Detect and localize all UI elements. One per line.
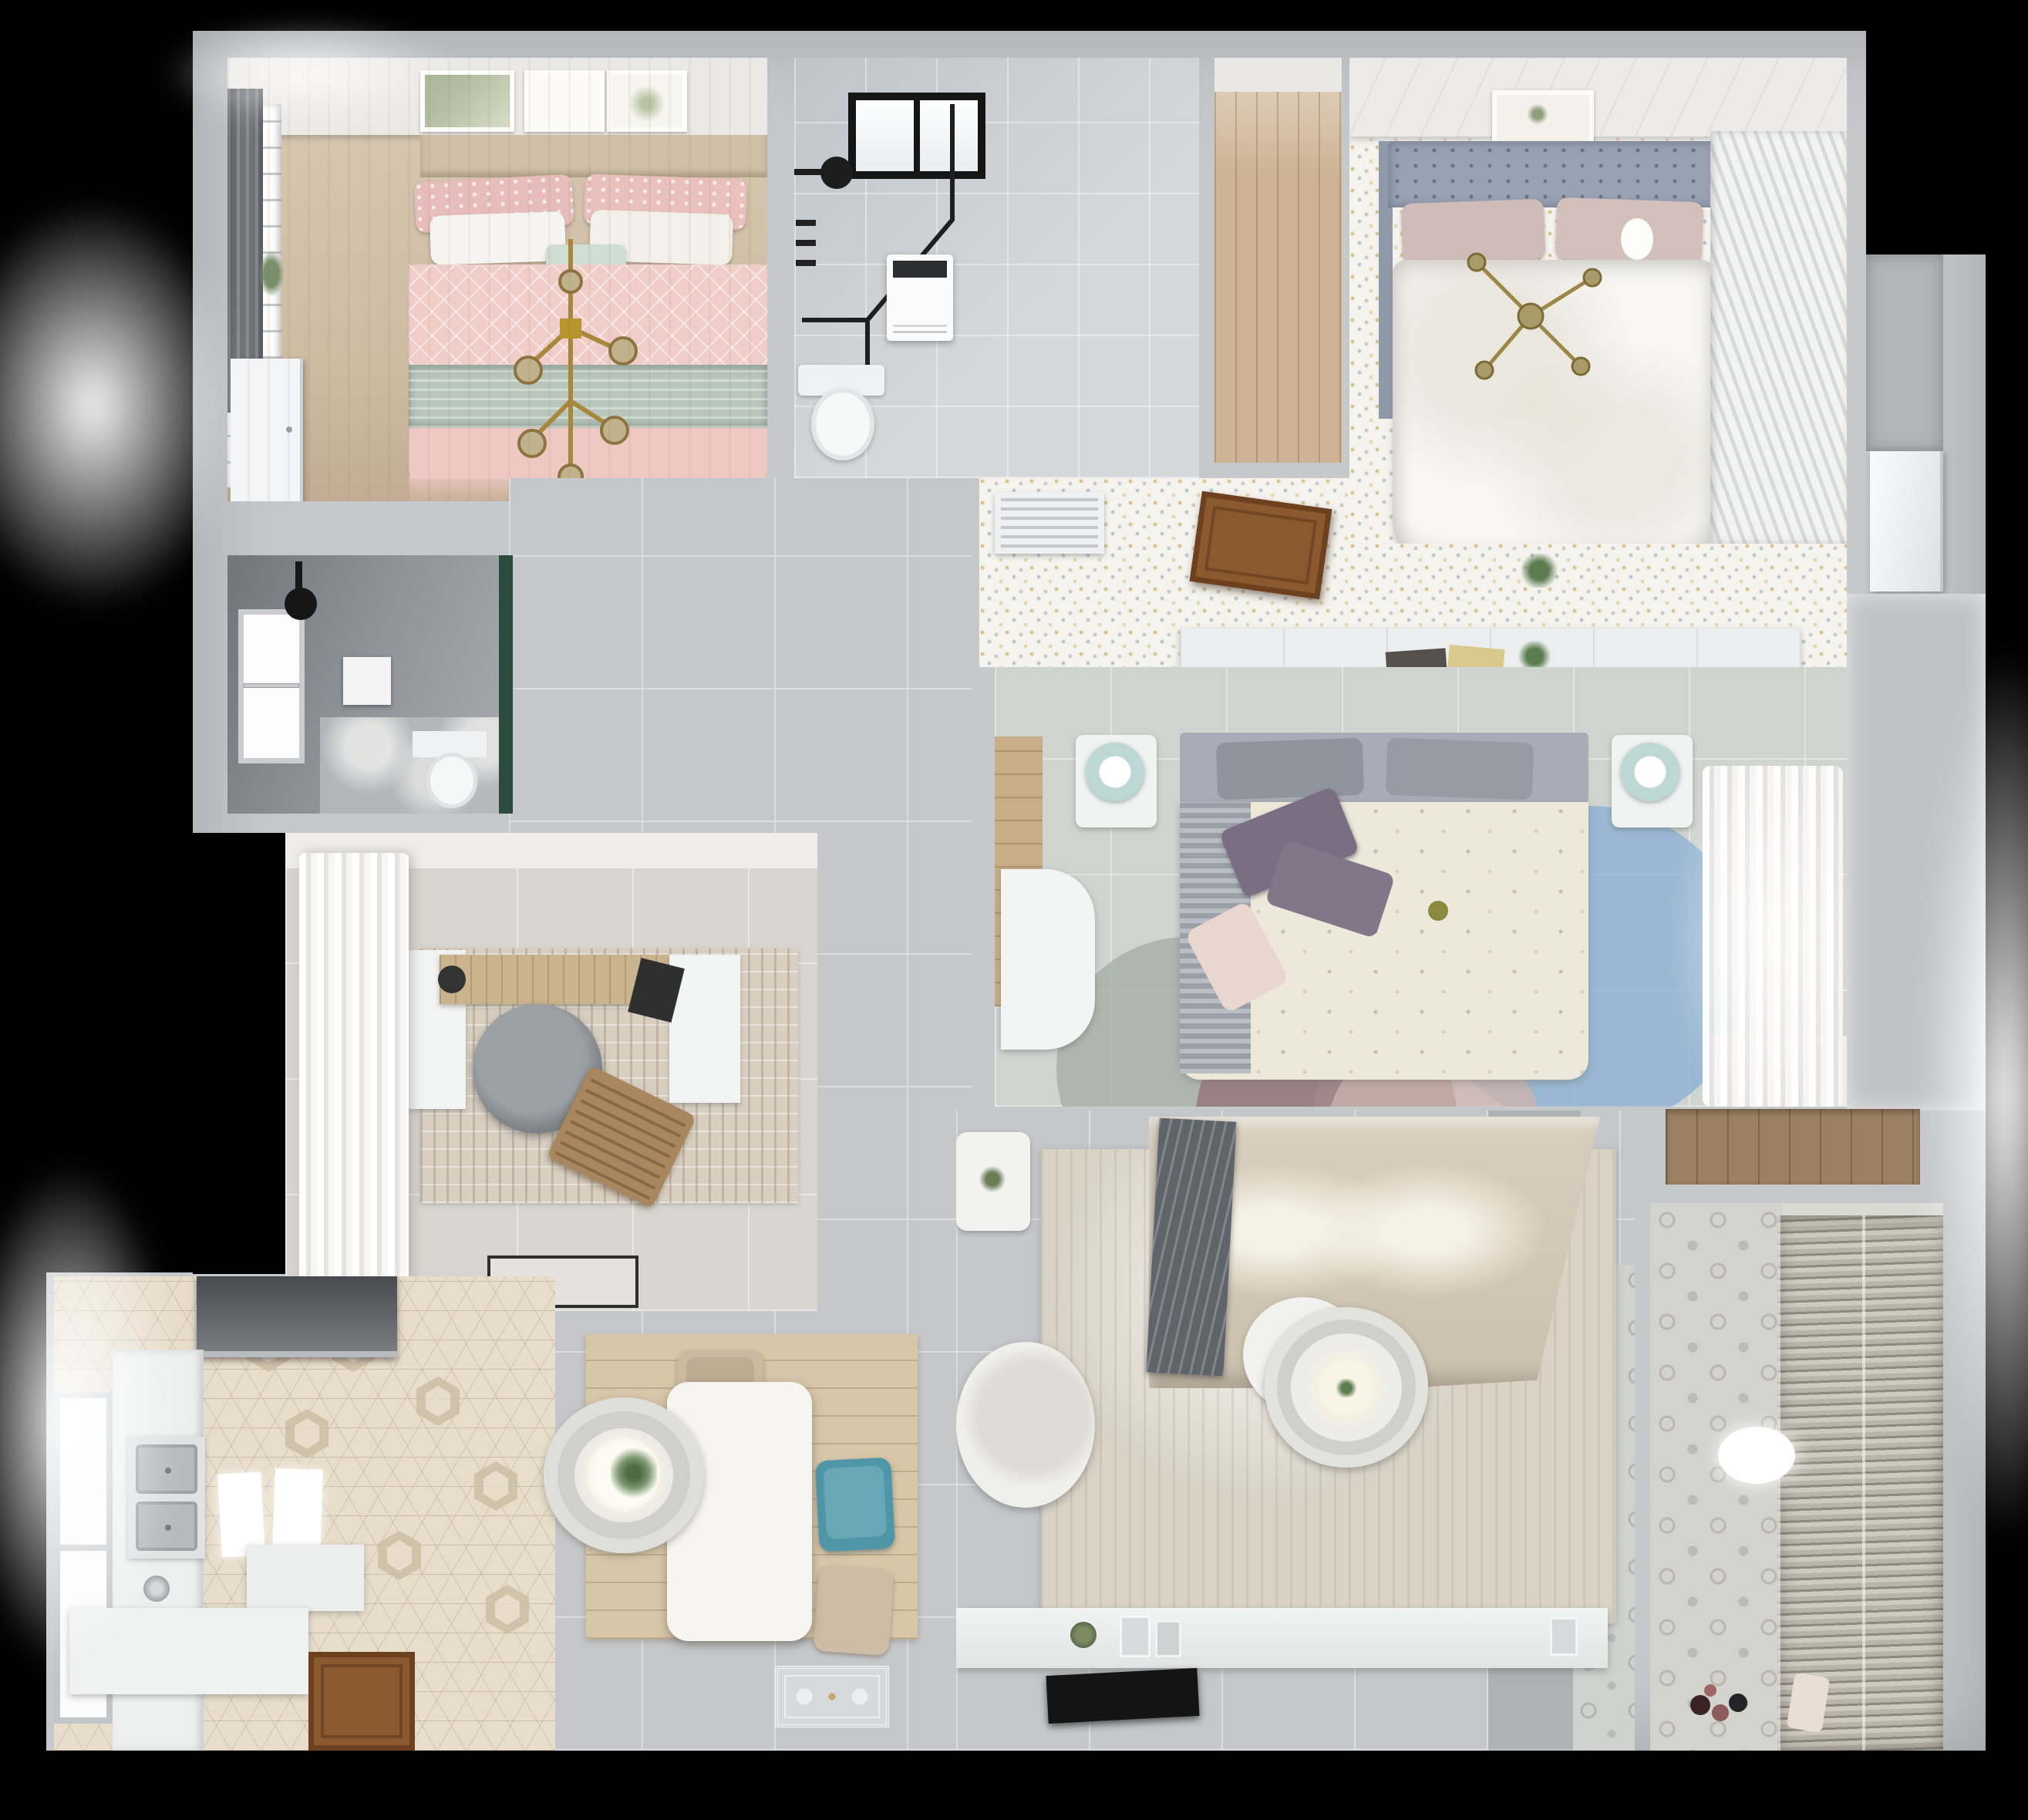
- decor-sprig: [1428, 901, 1448, 921]
- light-glow: [162, 23, 455, 123]
- wood-cabinet: [1666, 1109, 1920, 1185]
- open-wood-door: [1190, 491, 1332, 600]
- void-notch: [193, 833, 285, 1274]
- bathroom-dark: [227, 555, 513, 814]
- ceiling-lamp: [1718, 1427, 1795, 1484]
- pillow: [430, 211, 566, 265]
- pillow: [1216, 738, 1364, 800]
- bedroom-pink: [227, 58, 767, 501]
- blinds-window: [1777, 1215, 1943, 1751]
- hex-tile-motif: [474, 1461, 517, 1511]
- light-glow: [1920, 648, 2028, 1542]
- master-bedroom: [995, 667, 1847, 1107]
- light-glow: [0, 1164, 177, 1673]
- dining-area: [563, 1311, 948, 1751]
- toilet-bowl: [811, 388, 874, 460]
- photo-frame: [1550, 1617, 1578, 1656]
- toilet-bowl: [426, 753, 477, 808]
- vanity-desk: [1001, 869, 1095, 1050]
- picture-frame: [607, 70, 687, 132]
- picture-frame: [524, 70, 605, 132]
- counter-island: [247, 1545, 364, 1611]
- window-light-glow: [1673, 752, 1847, 1107]
- gray-headboard: [1388, 141, 1720, 207]
- hex-tile-motif: [378, 1531, 421, 1580]
- duvet: [409, 265, 767, 457]
- picture-frame: [1492, 90, 1594, 146]
- gold-cross-chandelier-icon: [1442, 243, 1619, 389]
- gold-branch-chandelier-icon: [455, 235, 686, 490]
- plant-icon: [258, 251, 285, 297]
- plant-pot: [1070, 1622, 1097, 1648]
- hex-tile-motif: [416, 1377, 460, 1426]
- pillow: [1386, 738, 1534, 800]
- range-hood: [197, 1276, 397, 1357]
- bathroom-top: [794, 58, 1199, 478]
- side-table: [956, 1132, 1030, 1231]
- desk-lamp: [438, 966, 466, 993]
- plant-icon: [1519, 554, 1559, 588]
- hex-tile-motif: [285, 1409, 328, 1458]
- bed-master: [1180, 733, 1588, 1080]
- toy: [1729, 1694, 1747, 1712]
- white-door: [1870, 451, 1943, 591]
- shower-arm: [794, 169, 825, 175]
- floorplan-render: [0, 0, 2028, 1820]
- bed-pink: [409, 174, 767, 501]
- tv: [1046, 1668, 1200, 1724]
- pillow: [413, 174, 574, 234]
- teal-lamp: [1621, 743, 1679, 801]
- wood-closet-strip: [1214, 58, 1342, 463]
- toy: [1704, 1684, 1716, 1697]
- slatted-wardrobe: [1710, 131, 1847, 544]
- washing-machine: [887, 254, 953, 341]
- blanket: [409, 365, 767, 428]
- pillow-round: [1621, 218, 1653, 260]
- armchair: [956, 1342, 1095, 1508]
- glossy-panel: [272, 1468, 323, 1556]
- ceiling-strip: [1349, 58, 1847, 136]
- plant-icon: [1336, 1379, 1357, 1397]
- duvet-foot: [409, 428, 767, 479]
- void-notch: [1866, 31, 1986, 254]
- toy: [1690, 1695, 1710, 1715]
- study: [285, 833, 817, 1311]
- plant-centerpiece: [611, 1448, 657, 1498]
- hex-tile-motif: [486, 1585, 529, 1634]
- dining-chair: [813, 1565, 894, 1657]
- white-door: [231, 359, 303, 501]
- living-room: [956, 1111, 1635, 1751]
- shower-valves: [796, 220, 816, 226]
- photo-frame: [1120, 1616, 1150, 1657]
- pillow: [546, 244, 626, 278]
- pillow: [584, 174, 747, 230]
- wall-niche: [343, 657, 391, 705]
- tv-console: [956, 1608, 1608, 1668]
- green-accent-strip: [499, 555, 513, 814]
- shower-head-icon: [820, 157, 853, 189]
- teal-lamp: [1086, 743, 1144, 801]
- light-glow: [0, 201, 239, 609]
- shower-head-icon: [285, 588, 317, 620]
- curtains: [299, 853, 409, 1308]
- dining-chair-teal: [815, 1458, 895, 1552]
- window: [238, 609, 305, 763]
- headboard: [420, 135, 767, 177]
- balcony: [1650, 1203, 1943, 1751]
- pillow: [589, 210, 733, 265]
- duct-shaft: [1866, 254, 1943, 451]
- bedroom-white: [1349, 58, 1847, 544]
- toy: [1712, 1704, 1729, 1721]
- photo-frame: [1155, 1620, 1181, 1657]
- wood-door: [308, 1652, 415, 1751]
- shower-enclosure-frame: [794, 89, 995, 413]
- ac-vent-grille: [995, 492, 1104, 554]
- gray-throw-blanket: [1146, 1118, 1236, 1377]
